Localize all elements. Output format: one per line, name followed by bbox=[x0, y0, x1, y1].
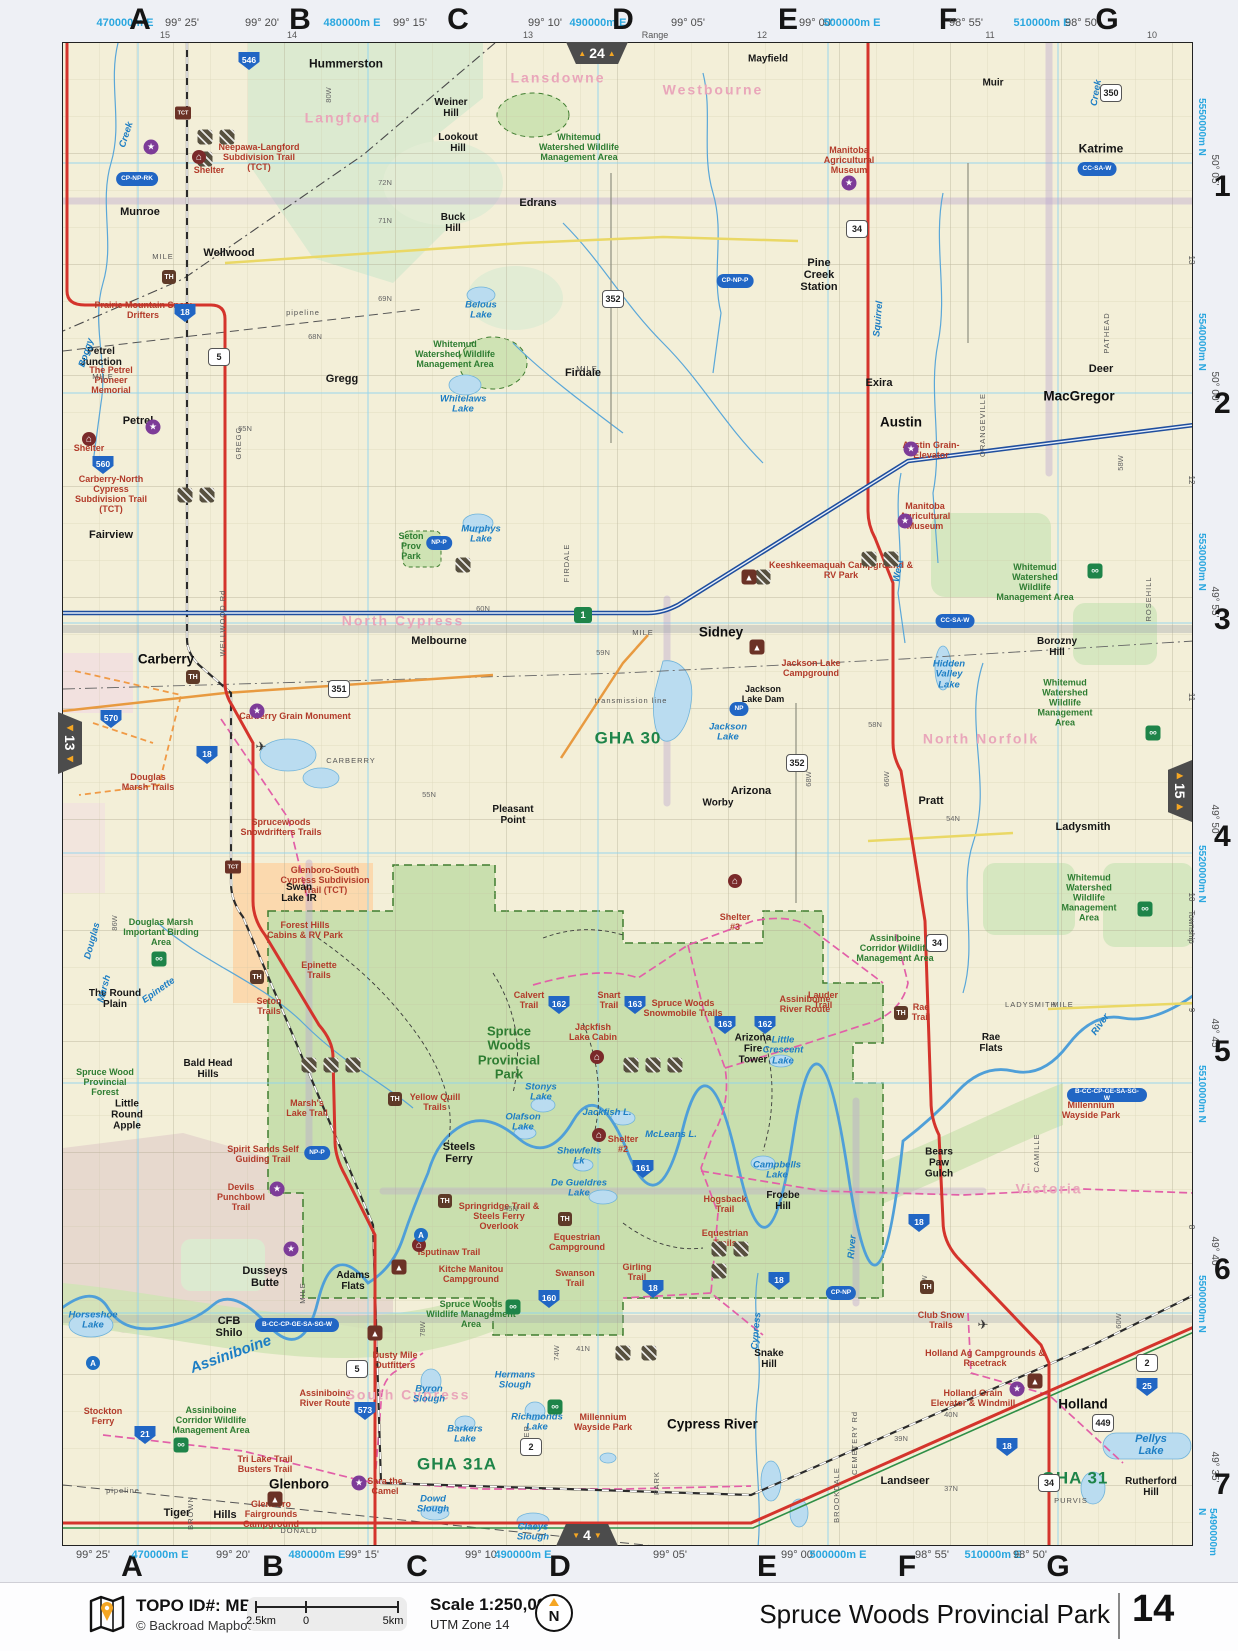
right-coordinate-label: 12 bbox=[1187, 476, 1196, 485]
map-symbol: A bbox=[86, 1356, 100, 1370]
map-symbol bbox=[884, 552, 899, 567]
map-symbol: ★ bbox=[352, 1476, 367, 1491]
map-symbol: B-CC-CP-GE-SA-SG-W bbox=[1067, 1088, 1147, 1102]
map-symbol: TH bbox=[250, 970, 264, 984]
top-coordinate-label: 12 bbox=[757, 30, 767, 40]
map-symbol bbox=[200, 488, 215, 503]
map-symbol: ▲ bbox=[392, 1260, 407, 1275]
right-coordinate-label: 10 bbox=[1187, 893, 1196, 902]
bottom-coordinate-label: 99° 20' bbox=[216, 1549, 250, 1561]
north-compass-icon: N bbox=[535, 1594, 573, 1632]
map-symbol: 18 bbox=[769, 1272, 790, 1290]
map-symbol bbox=[346, 1058, 361, 1073]
map-symbol bbox=[220, 130, 235, 145]
map-symbol bbox=[756, 570, 771, 585]
arrow-left-icon: ◀ bbox=[67, 754, 73, 763]
top-coordinate-bar: 470000m E99° 25'A1599° 20'14B480000m E99… bbox=[0, 0, 1238, 42]
map-symbol bbox=[668, 1058, 683, 1073]
map-symbol bbox=[642, 1346, 657, 1361]
right-coordinate-label: 8 bbox=[1187, 1225, 1196, 1229]
map-symbol: NP-P bbox=[426, 536, 452, 550]
right-coordinate-label: 5500000m N bbox=[1196, 1275, 1207, 1333]
bottom-coordinate-label: 500000m E bbox=[810, 1549, 867, 1561]
map-symbol: 352 bbox=[786, 754, 808, 772]
map-symbol bbox=[178, 488, 193, 503]
right-coordinate-label: 5 bbox=[1214, 1035, 1231, 1069]
map-symbol: TH bbox=[920, 1280, 934, 1294]
map-symbol: CC-SA-W bbox=[1078, 162, 1117, 176]
map-symbol: 162 bbox=[549, 996, 570, 1014]
map-symbol: ★ bbox=[144, 140, 159, 155]
top-coordinate-label: D bbox=[612, 3, 634, 37]
right-coordinate-label: 6 bbox=[1214, 1253, 1231, 1287]
map-symbol bbox=[712, 1242, 727, 1257]
right-coordinate-label: 13 bbox=[1187, 256, 1196, 265]
map-symbol: CP-NP-RK bbox=[116, 172, 158, 186]
map-symbol: ★ bbox=[284, 1242, 299, 1257]
top-coordinate-label: Range bbox=[642, 30, 669, 40]
map-symbol bbox=[198, 130, 213, 145]
map-symbol: oo bbox=[506, 1300, 521, 1315]
map-symbol: 352 bbox=[602, 290, 624, 308]
right-coordinate-label: 4 bbox=[1214, 820, 1231, 854]
bottom-coordinate-label: 99° 25' bbox=[76, 1549, 110, 1561]
bottom-coordinate-bar: 99° 25'A470000m E99° 20'B480000m E99° 15… bbox=[0, 1546, 1238, 1582]
map-symbol bbox=[646, 1058, 661, 1073]
right-coordinate-label: 5550000m N bbox=[1196, 98, 1207, 156]
adjacent-map-north-24[interactable]: ▲ 24 ▲ bbox=[566, 42, 628, 64]
map-symbol: 570 bbox=[101, 710, 122, 728]
right-coordinate-label: 1 bbox=[1214, 170, 1231, 204]
map-symbol: ★ bbox=[904, 442, 919, 457]
map-symbol: oo bbox=[1088, 564, 1103, 579]
right-coordinate-label: 2 bbox=[1214, 387, 1231, 421]
right-coordinate-label: 5520000m N bbox=[1196, 845, 1207, 903]
top-coordinate-label: 500000m E bbox=[824, 17, 881, 29]
top-coordinate-label: 13 bbox=[523, 30, 533, 40]
scale-bar: 2.5km 0 5km bbox=[247, 1597, 407, 1631]
scale-tick bbox=[397, 1601, 399, 1613]
map-symbol bbox=[456, 558, 471, 573]
footer: TOPO ID#: MBMB14 © Backroad Mapbooks 2.5… bbox=[0, 1582, 1238, 1651]
map-symbol: 1 bbox=[574, 607, 592, 623]
map-symbol bbox=[734, 1242, 749, 1257]
top-coordinate-label: 15 bbox=[160, 30, 170, 40]
bottom-coordinate-label: F bbox=[898, 1550, 916, 1584]
map-symbol: 2 bbox=[520, 1438, 542, 1456]
map-symbol: ✈ bbox=[256, 739, 267, 755]
map-symbol: ▲ bbox=[1028, 1374, 1043, 1389]
map-symbol: B-CC-CP-GE-SA-SG-W bbox=[255, 1318, 339, 1332]
arrow-down-icon: ▼ bbox=[572, 1531, 580, 1540]
top-coordinate-label: 480000m E bbox=[324, 17, 381, 29]
map-symbol: ★ bbox=[898, 514, 913, 529]
map-symbol: 163 bbox=[715, 1016, 736, 1034]
map-symbol bbox=[302, 1058, 317, 1073]
adjacent-map-west-13[interactable]: ◀ 13 ◀ bbox=[58, 712, 82, 774]
map-symbol: oo bbox=[1146, 726, 1161, 741]
map-symbol bbox=[712, 1264, 727, 1279]
bottom-coordinate-label: 490000m E bbox=[495, 1549, 552, 1561]
map-canvas: HummerstonLangfordLansdowneWestbourneMay… bbox=[62, 42, 1193, 1546]
map-symbol: TCT bbox=[225, 861, 241, 874]
bottom-coordinate-label: 480000m E bbox=[289, 1549, 346, 1561]
bottom-coordinate-label: 98° 50' bbox=[1013, 1549, 1047, 1561]
top-coordinate-label: G bbox=[1095, 3, 1118, 37]
map-symbol: ▲ bbox=[268, 1492, 283, 1507]
arrow-right-icon: ▶ bbox=[1177, 771, 1183, 780]
map-symbol: 5 bbox=[208, 348, 230, 366]
adjacent-map-east-15[interactable]: ▶ 15 ▶ bbox=[1168, 760, 1192, 822]
map-symbol: ▲ bbox=[368, 1326, 383, 1341]
map-symbol bbox=[616, 1346, 631, 1361]
top-coordinate-label: 99° 20' bbox=[245, 17, 279, 29]
title-divider bbox=[1118, 1593, 1120, 1639]
map-symbol: ⌂ bbox=[728, 874, 742, 888]
map-symbol: 162 bbox=[755, 1016, 776, 1034]
map-symbol: CP-NP-P bbox=[717, 274, 754, 288]
scale-tick bbox=[305, 1601, 307, 1613]
map-symbol: ▲ bbox=[750, 640, 765, 655]
top-coordinate-label: 10 bbox=[1147, 30, 1157, 40]
map-symbol: ⌂ bbox=[82, 432, 96, 446]
map-symbol: TH bbox=[438, 1194, 452, 1208]
map-symbol: 25 bbox=[1137, 1378, 1158, 1396]
map-symbol bbox=[324, 1058, 339, 1073]
bottom-coordinate-label: 470000m E bbox=[132, 1549, 189, 1561]
map-symbol: ★ bbox=[1010, 1382, 1025, 1397]
map-symbol: 34 bbox=[1038, 1474, 1060, 1492]
map-symbol: TCT bbox=[175, 107, 191, 120]
map-symbol: ⌂ bbox=[590, 1050, 604, 1064]
map-symbol: ★ bbox=[270, 1182, 285, 1197]
bottom-coordinate-label: E bbox=[757, 1550, 777, 1584]
scale-label-left: 2.5km bbox=[246, 1615, 276, 1627]
right-coordinate-bar: 5550000m N50° 05'1135540000m N50° 00'212… bbox=[1196, 42, 1238, 1546]
bottom-coordinate-label: D bbox=[549, 1550, 571, 1584]
right-coordinate-label: 5540000m N bbox=[1196, 313, 1207, 371]
bottom-coordinate-label: G bbox=[1046, 1550, 1069, 1584]
bottom-coordinate-label: C bbox=[406, 1550, 428, 1584]
scale-bar-line bbox=[255, 1606, 399, 1608]
right-coordinate-label: 5490000m N bbox=[1196, 1508, 1218, 1556]
top-coordinate-label: 99° 05' bbox=[671, 17, 705, 29]
map-symbol: oo bbox=[548, 1400, 563, 1415]
map-symbol-layer: 5463503451835256013515701835234162163163… bbox=[63, 43, 1192, 1545]
map-symbol: TH bbox=[388, 1092, 402, 1106]
map-symbol: 160 bbox=[539, 1290, 560, 1308]
map-symbol: TH bbox=[186, 670, 200, 684]
map-symbol: 34 bbox=[926, 934, 948, 952]
map-symbol: TH bbox=[558, 1212, 572, 1226]
right-coordinate-label: 11 bbox=[1187, 693, 1196, 701]
right-coordinate-label: 5510000m N bbox=[1196, 1065, 1207, 1123]
top-coordinate-label: 99° 25' bbox=[165, 17, 199, 29]
top-coordinate-label: 99° 10' bbox=[528, 17, 562, 29]
map-symbol: 18 bbox=[175, 304, 196, 322]
map-symbol: oo bbox=[174, 1438, 189, 1453]
map-symbol bbox=[862, 552, 877, 567]
utm-zone: UTM Zone 14 bbox=[430, 1617, 509, 1632]
right-coordinate-label: 5530000m N bbox=[1196, 533, 1207, 591]
map-symbol: oo bbox=[152, 952, 167, 967]
map-symbol: CP-NP bbox=[826, 1286, 856, 1300]
right-coordinate-label: 3 bbox=[1214, 603, 1231, 637]
map-symbol: NP-P bbox=[304, 1146, 330, 1160]
right-coordinate-label: Township bbox=[1187, 910, 1196, 943]
map-symbol: oo bbox=[1138, 902, 1153, 917]
map-symbol: ★ bbox=[250, 704, 265, 719]
map-symbol: 163 bbox=[625, 996, 646, 1014]
right-coordinate-label: 9 bbox=[1187, 1008, 1196, 1012]
page-number: 14 bbox=[1132, 1588, 1174, 1631]
scale-tick bbox=[255, 1601, 257, 1613]
adjacent-map-south-4[interactable]: ▼ 4 ▼ bbox=[556, 1524, 618, 1546]
map-symbol: TH bbox=[162, 270, 176, 284]
map-symbol: ★ bbox=[146, 420, 161, 435]
top-coordinate-label: A bbox=[129, 3, 151, 37]
top-coordinate-label: E bbox=[778, 3, 798, 37]
right-coordinate-label: 7 bbox=[1214, 1468, 1231, 1502]
map-symbol: 161 bbox=[633, 1160, 654, 1178]
map-symbol: NP bbox=[729, 702, 748, 716]
bottom-coordinate-label: 99° 15' bbox=[345, 1549, 379, 1561]
map-symbol: ✈ bbox=[978, 1317, 989, 1333]
top-coordinate-label: 98° 50' bbox=[1065, 17, 1099, 29]
map-symbol: 449 bbox=[1092, 1414, 1114, 1432]
top-coordinate-label: B bbox=[289, 3, 311, 37]
map-symbol: ▲ bbox=[742, 570, 757, 585]
top-coordinate-label: 11 bbox=[985, 30, 994, 40]
map-symbol: 18 bbox=[997, 1438, 1018, 1456]
map-symbol: 18 bbox=[909, 1214, 930, 1232]
map-symbol bbox=[624, 1058, 639, 1073]
bottom-coordinate-label: 99° 05' bbox=[653, 1549, 687, 1561]
arrow-left-icon: ◀ bbox=[67, 723, 73, 732]
map-symbol: 351 bbox=[328, 680, 350, 698]
map-symbol: 2 bbox=[1136, 1354, 1158, 1372]
map-symbol: 350 bbox=[1100, 84, 1122, 102]
map-symbol: 546 bbox=[239, 52, 260, 70]
arrow-up-icon: ▲ bbox=[578, 49, 586, 58]
map-symbol: CC-SA-W bbox=[936, 614, 975, 628]
map-symbol: 21 bbox=[135, 1426, 156, 1444]
map-symbol: 18 bbox=[643, 1280, 664, 1298]
map-icon bbox=[88, 1595, 126, 1635]
map-symbol: TH bbox=[894, 1006, 908, 1020]
scale-label-zero: 0 bbox=[303, 1615, 309, 1627]
map-symbol: A bbox=[414, 1228, 428, 1242]
top-coordinate-label: 98° 55' bbox=[949, 17, 983, 29]
top-coordinate-label: C bbox=[447, 3, 469, 37]
arrow-up-icon: ▲ bbox=[608, 49, 616, 58]
map-symbol: 573 bbox=[355, 1402, 376, 1420]
map-symbol: ⌂ bbox=[192, 150, 206, 164]
bottom-coordinate-label: B bbox=[262, 1550, 284, 1584]
map-symbol: 560 bbox=[93, 456, 114, 474]
map-symbol: 5 bbox=[346, 1360, 368, 1378]
bottom-coordinate-label: 98° 55' bbox=[915, 1549, 949, 1561]
map-symbol: 34 bbox=[846, 220, 868, 238]
top-coordinate-label: 510000m E bbox=[1014, 17, 1071, 29]
map-symbol: ⌂ bbox=[592, 1128, 606, 1142]
page-title: Spruce Woods Provincial Park bbox=[759, 1599, 1110, 1630]
arrow-right-icon: ▶ bbox=[1177, 802, 1183, 811]
top-coordinate-label: 99° 15' bbox=[393, 17, 427, 29]
map-symbol: 18 bbox=[197, 746, 218, 764]
map-symbol: ★ bbox=[842, 176, 857, 191]
arrow-down-icon: ▼ bbox=[594, 1531, 602, 1540]
scale-label-right: 5km bbox=[383, 1615, 404, 1627]
